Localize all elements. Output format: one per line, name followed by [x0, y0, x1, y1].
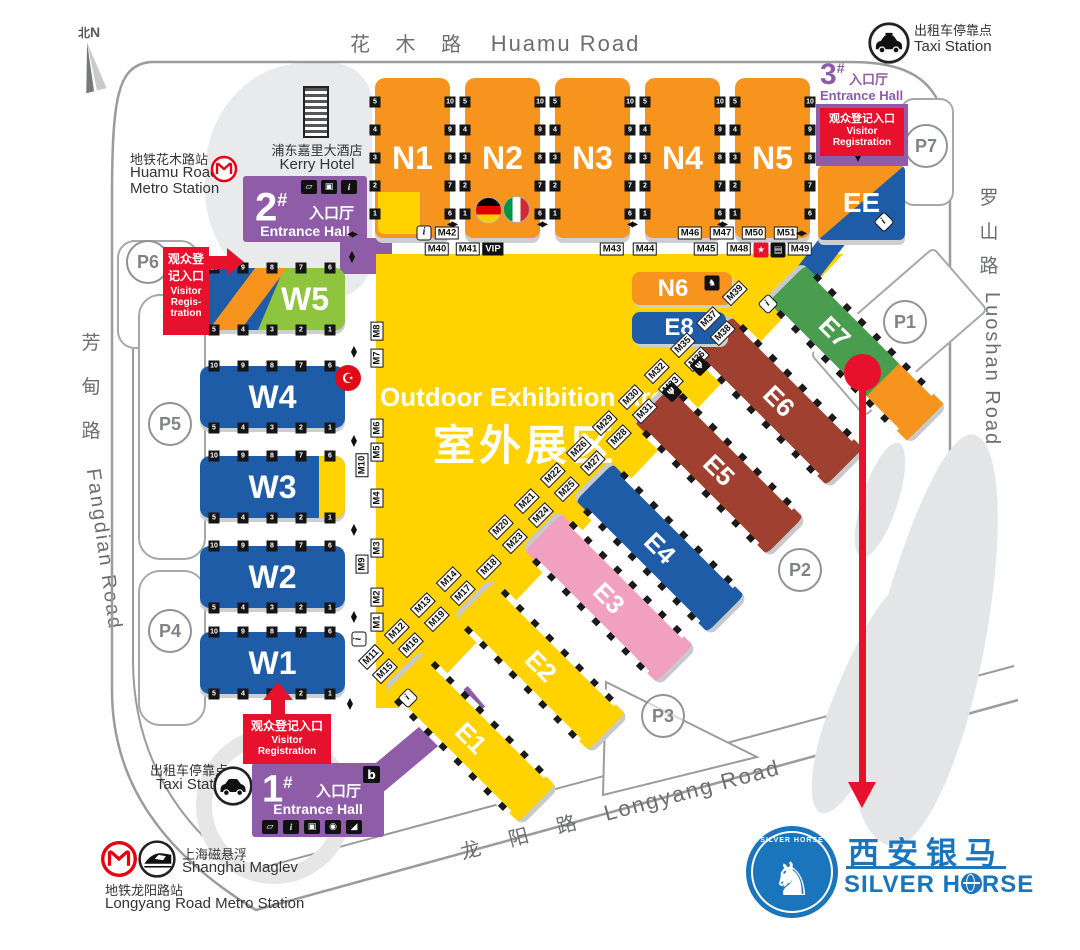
- train-icon: [138, 840, 176, 878]
- room-label: M46: [678, 227, 702, 240]
- entrance1-icons: ▱ i ▣ ◉ ◢: [262, 820, 362, 834]
- gate-number: 5: [370, 97, 381, 108]
- gate-number: 9: [238, 361, 249, 372]
- gate-number: 9: [445, 125, 456, 136]
- hall-label: W5: [281, 281, 329, 318]
- info-icon: i: [417, 226, 432, 241]
- parking-p2: P2: [778, 548, 822, 592]
- double-arrow-icon: ◀▶: [447, 220, 457, 229]
- registration-arrow-up: [271, 699, 285, 715]
- luggage-icon: ▣: [304, 820, 320, 834]
- silver-horse-badge: SILVER HORSE ♞: [746, 826, 838, 918]
- hall-label: E4: [638, 526, 682, 570]
- room-label: M49: [788, 243, 812, 256]
- gate-number: 4: [238, 513, 249, 524]
- luggage-icon: ▣: [321, 180, 337, 194]
- hall-label: E2: [519, 644, 563, 688]
- star-icon: ★: [754, 243, 769, 258]
- gate-number: 2: [730, 181, 741, 192]
- room-label: M3: [371, 538, 384, 557]
- gate-number: 10: [535, 97, 546, 108]
- room-label: M6: [371, 418, 384, 437]
- gate-number: 9: [625, 125, 636, 136]
- silver-horse-en-post: RSE: [982, 871, 1034, 898]
- gate-number: 6: [325, 627, 336, 638]
- gate-number: 5: [460, 97, 471, 108]
- room-label: M2: [371, 587, 384, 606]
- hall-ee: EE: [818, 165, 905, 240]
- gate-number: 6: [715, 209, 726, 220]
- huamu-metro-en2: Metro Station: [130, 180, 219, 197]
- registration-en: Registration: [820, 137, 904, 148]
- badge-arc-text: SILVER HORSE: [746, 837, 838, 844]
- gate-number: 2: [296, 603, 307, 614]
- room-label: VIP: [482, 243, 503, 256]
- gate-number: 10: [445, 97, 456, 108]
- gate-number: 1: [460, 209, 471, 220]
- room-label: M50: [742, 227, 766, 240]
- hall-label: N2: [482, 140, 523, 177]
- gate-number: 3: [267, 603, 278, 614]
- registration-en: Regis-: [163, 297, 209, 308]
- double-arrow-icon: ▲▼: [347, 698, 353, 710]
- gate-number: 3: [267, 513, 278, 524]
- double-arrow-icon: ◀▶: [347, 230, 357, 239]
- gate-number: 7: [296, 451, 307, 462]
- registration-en: tration: [163, 308, 209, 319]
- room-label: M10: [356, 453, 369, 477]
- gate-number: 9: [535, 125, 546, 136]
- gate-number: 7: [625, 181, 636, 192]
- room-label: M1: [371, 612, 384, 631]
- gate-number: 4: [238, 423, 249, 434]
- hall-label: N5: [752, 140, 793, 177]
- arrow-down-glyph: ▼: [349, 257, 355, 263]
- gate-number: 10: [209, 451, 220, 462]
- gate-number: 9: [238, 541, 249, 552]
- registration-zh: 记入口: [163, 267, 209, 284]
- gate-number: 3: [267, 325, 278, 336]
- gate-number: 1: [325, 423, 336, 434]
- hall-n1-annex: [378, 192, 420, 234]
- gate-number: 1: [730, 209, 741, 220]
- gate-number: 1: [550, 209, 561, 220]
- gate-number: 2: [550, 181, 561, 192]
- gate-number: 7: [296, 263, 307, 274]
- gate-number: 3: [267, 423, 278, 434]
- parking-p1: P1: [883, 300, 927, 344]
- locator-arrowhead: [848, 782, 876, 808]
- entrance1-zh: 入口厅: [316, 780, 361, 801]
- gate-number: 4: [550, 125, 561, 136]
- metro-logo-icon: [210, 155, 238, 183]
- gate-number: 1: [325, 513, 336, 524]
- entrance-hash: #: [283, 773, 292, 792]
- room-label: M7: [371, 348, 384, 367]
- arrow-down-glyph: ▼: [351, 441, 357, 447]
- gate-number: 7: [296, 627, 307, 638]
- hall-w4: W4: [200, 366, 345, 428]
- silver-horse-en-pre: SILVER H: [844, 871, 961, 898]
- gate-number: 5: [209, 325, 220, 336]
- hotel-icon: [303, 86, 329, 138]
- info-icon: i: [341, 180, 357, 194]
- gate-number: 6: [325, 451, 336, 462]
- double-arrow-icon: ◀▶: [537, 220, 547, 229]
- room-label: M8: [371, 321, 384, 340]
- hall-w3-annex: [319, 456, 345, 518]
- room-label: M51: [774, 227, 798, 240]
- silver-horse-en: SILVER HRSE: [844, 871, 1034, 899]
- outdoor-area-label-zh: 室外展区: [380, 412, 670, 473]
- hall-label: N3: [572, 140, 613, 177]
- gate-number: 8: [267, 627, 278, 638]
- gate-number: 5: [550, 97, 561, 108]
- entrance-hash: #: [277, 190, 287, 210]
- gate-number: 8: [715, 153, 726, 164]
- gate-number: 6: [325, 361, 336, 372]
- gate-number: 3: [640, 153, 651, 164]
- parking-p3: P3: [641, 694, 685, 738]
- hall-n1: N1: [375, 78, 450, 238]
- silver-horse-underline: [846, 866, 1006, 869]
- gate-number: 9: [238, 451, 249, 462]
- registration-arrow-right: [209, 256, 227, 269]
- double-arrow-icon: ▲▼: [351, 611, 357, 623]
- hall-n4: N4: [645, 78, 720, 238]
- gate-number: 8: [445, 153, 456, 164]
- gate-number: 6: [445, 209, 456, 220]
- gate-number: 8: [267, 361, 278, 372]
- gate-number: 8: [535, 153, 546, 164]
- gate-number: 10: [625, 97, 636, 108]
- double-arrow-icon: ▲▼: [349, 251, 355, 263]
- gate-number: 1: [370, 209, 381, 220]
- gate-number: 7: [535, 181, 546, 192]
- gate-number: 7: [715, 181, 726, 192]
- gate-number: 4: [238, 689, 249, 700]
- italy-flag-icon: [503, 196, 530, 223]
- gate-number: 3: [370, 153, 381, 164]
- registration-zh: 观众登: [163, 250, 209, 267]
- room-label: M40: [425, 243, 449, 256]
- hall-label: EE: [843, 187, 880, 219]
- globe-equator: [963, 882, 980, 884]
- entrance3-en: Entrance Hall: [820, 88, 903, 103]
- hall-w5: W5: [200, 268, 345, 330]
- registration-zh: 观众登记入口: [243, 717, 331, 734]
- gate-number: 4: [730, 125, 741, 136]
- entrance2-number: 2#: [255, 180, 287, 227]
- gate-number: 5: [209, 689, 220, 700]
- card-icon: ▤: [771, 243, 786, 258]
- gate-number: 5: [209, 603, 220, 614]
- gate-number: 8: [805, 153, 816, 164]
- visitor-registration-bottom: 观众登记入口 Visitor Registration: [243, 714, 331, 764]
- taxi-icon: [213, 766, 253, 806]
- gate-number: 5: [209, 513, 220, 524]
- gate-number: 6: [325, 541, 336, 552]
- gate-number: 5: [730, 97, 741, 108]
- registration-zh: 观众登记入口: [820, 110, 904, 126]
- hall-label: N4: [662, 140, 703, 177]
- hall-label: E3: [587, 576, 631, 620]
- gate-number: 10: [209, 361, 220, 372]
- gate-number: 4: [238, 325, 249, 336]
- gate-number: 9: [238, 627, 249, 638]
- gate-number: 8: [267, 263, 278, 274]
- arrow-down-glyph: ▼: [347, 704, 353, 710]
- ticket-icon: ▱: [262, 820, 278, 834]
- gate-number: 6: [805, 209, 816, 220]
- gate-number: 7: [805, 181, 816, 192]
- gate-number: 4: [460, 125, 471, 136]
- gate-number: 1: [325, 603, 336, 614]
- room-label: M9: [356, 554, 369, 573]
- hall-label: N6: [658, 275, 689, 303]
- entrance1-en: Entrance Hall: [252, 801, 384, 817]
- ticket-icon: ▱: [301, 180, 317, 194]
- gate-number: 2: [640, 181, 651, 192]
- gate-number: 7: [445, 181, 456, 192]
- gate-number: 2: [296, 325, 307, 336]
- hall-label: W4: [249, 379, 297, 416]
- locator-line: [859, 372, 866, 782]
- statue-icon: ♞: [705, 276, 720, 291]
- hall-w3: W3: [200, 456, 345, 518]
- taxi-top-zh: 出租车停靠点: [914, 20, 992, 39]
- hall-n3: N3: [555, 78, 630, 238]
- registration-en: Registration: [243, 746, 331, 757]
- room-label: M48: [727, 243, 751, 256]
- gate-number: 10: [209, 541, 220, 552]
- gate-number: 8: [267, 451, 278, 462]
- turkey-flag-icon: ☪: [335, 365, 361, 391]
- gate-number: 10: [715, 97, 726, 108]
- kerry-hotel-en: Kerry Hotel: [252, 156, 382, 173]
- arrow-down-glyph: ▼: [351, 530, 357, 536]
- double-arrow-icon: ▲▼: [351, 435, 357, 447]
- arrow-down-glyph: ▼: [351, 617, 357, 623]
- gate-number: 9: [805, 125, 816, 136]
- gate-number: 2: [460, 181, 471, 192]
- info-icon: i: [283, 820, 299, 834]
- gate-number: 8: [625, 153, 636, 164]
- info-icon: i: [352, 632, 367, 647]
- registration-arrow-right-head: [227, 248, 244, 276]
- gate-number: 2: [296, 513, 307, 524]
- registration-en: Visitor: [163, 286, 209, 297]
- hall-label: W3: [249, 469, 297, 506]
- gate-number: 3: [550, 153, 561, 164]
- hall-label: N1: [392, 140, 433, 177]
- gate-number: 5: [640, 97, 651, 108]
- exhibition-center-map: 北N 花 木 路 Huamu Road 罗 山 路 Luoshan Road 芳…: [0, 0, 1080, 950]
- gate-number: 2: [296, 689, 307, 700]
- visitor-registration-left: 观众登 记入口 Visitor Regis- tration: [163, 247, 209, 335]
- hall-label: W2: [249, 559, 297, 596]
- gate-number: 10: [209, 627, 220, 638]
- double-arrow-icon: ◀▶: [717, 220, 727, 229]
- entrance-hall-1: 1# 入口厅 Entrance Hall ▱ i ▣ ◉ ◢ b: [252, 763, 384, 837]
- escalator-icon: ◢: [346, 820, 362, 834]
- room-label: M4: [371, 488, 384, 507]
- entrance-hall-3-label: 3# 入口厅 Entrance Hall: [820, 58, 903, 103]
- registration-arrow-up-head: [263, 682, 293, 700]
- double-arrow-icon: ◀▶: [796, 229, 806, 238]
- double-arrow-icon: ▲▼: [351, 524, 357, 536]
- double-arrow-icon: ▲▼: [351, 346, 357, 358]
- longyang-metro-en: Longyang Road Metro Station: [105, 895, 304, 912]
- gate-number: 8: [267, 541, 278, 552]
- entrance2-icons: ▱ ▣ i: [301, 180, 357, 194]
- parking-p5: P5: [148, 402, 192, 446]
- gate-number: 6: [535, 209, 546, 220]
- room-label: M41: [456, 243, 480, 256]
- entrance2-zh: 入口厅: [309, 202, 354, 223]
- gate-number: 1: [325, 689, 336, 700]
- room-label: M43: [600, 243, 624, 256]
- business-center-icon: b: [363, 766, 380, 783]
- gate-number: 7: [296, 541, 307, 552]
- visitor-registration-right: 观众登记入口 Visitor Registration: [820, 108, 904, 156]
- room-label: M5: [371, 442, 384, 461]
- room-label: M44: [633, 243, 657, 256]
- room-label: M45: [694, 243, 718, 256]
- double-arrow-icon: ◀▶: [627, 220, 637, 229]
- parking-p4: P4: [148, 609, 192, 653]
- germany-flag-icon: [475, 197, 502, 224]
- gate-number: 2: [296, 423, 307, 434]
- registration-en: Visitor: [243, 735, 331, 746]
- hall-label: E5: [697, 448, 741, 492]
- hall-label: W1: [249, 645, 297, 682]
- gate-number: 4: [640, 125, 651, 136]
- hall-label: E6: [757, 379, 801, 423]
- maglev-en: Shanghai Maglev: [182, 859, 298, 876]
- gate-number: 3: [730, 153, 741, 164]
- hall-n5: N5: [735, 78, 810, 238]
- gate-number: 1: [640, 209, 651, 220]
- gate-number: 5: [209, 423, 220, 434]
- hall-label: E1: [449, 716, 493, 760]
- gate-number: 3: [460, 153, 471, 164]
- gate-number: 2: [370, 181, 381, 192]
- gate-number: 6: [325, 263, 336, 274]
- entrance3-zh: 入口厅: [849, 72, 888, 87]
- entrance-number: 3: [820, 58, 837, 91]
- registration-en: Visitor: [820, 126, 904, 137]
- hall-w2: W2: [200, 546, 345, 608]
- metro-logo-icon: [100, 840, 138, 878]
- globe-icon: [961, 873, 982, 894]
- parking-p7: P7: [904, 124, 948, 168]
- entrance-hash: #: [837, 60, 845, 76]
- gate-number: 4: [238, 603, 249, 614]
- gate-number: 10: [805, 97, 816, 108]
- camera-icon: ◉: [325, 820, 341, 834]
- gate-number: 1: [325, 325, 336, 336]
- gate-number: 9: [715, 125, 726, 136]
- gate-number: 6: [625, 209, 636, 220]
- gate-number: 4: [370, 125, 381, 136]
- gate-number: 7: [296, 361, 307, 372]
- huamu-metro-en1: Huamu Road: [130, 164, 218, 181]
- arrow-down-glyph: ▼: [351, 352, 357, 358]
- arrow-down-glyph: ▼: [855, 156, 861, 162]
- taxi-top-en: Taxi Station: [914, 38, 992, 55]
